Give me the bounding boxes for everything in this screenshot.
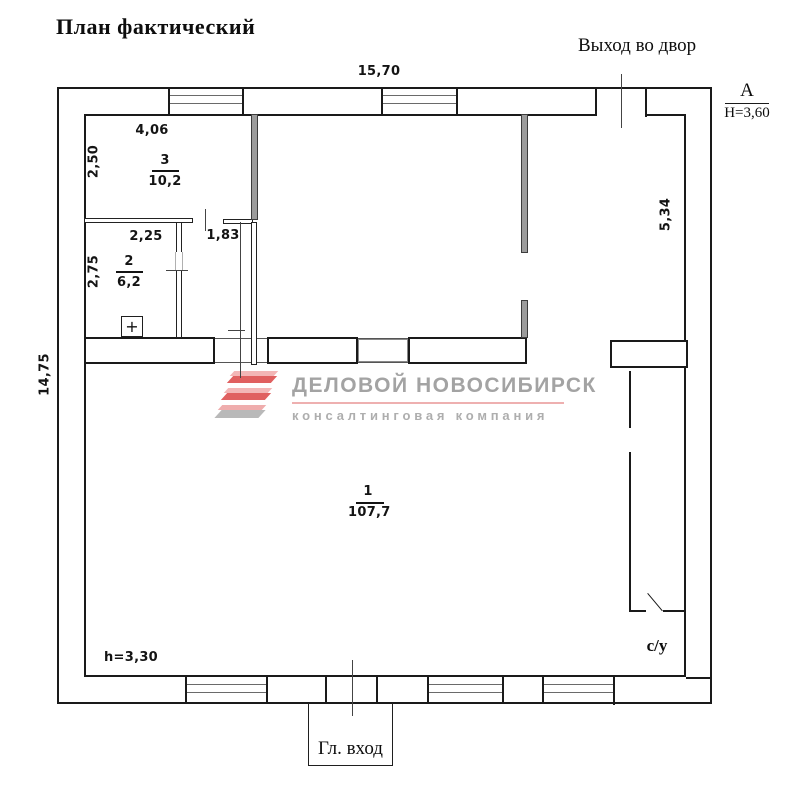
dim-hall-width: 1,83 bbox=[204, 228, 242, 243]
partition-right-gray bbox=[521, 300, 528, 338]
riser-plus-icon: + bbox=[121, 316, 143, 337]
window-bottom-2-line bbox=[428, 684, 503, 685]
window-top-2-jamb bbox=[381, 87, 383, 116]
room1-area: 107,7 bbox=[348, 505, 388, 520]
middle-wall-pier bbox=[408, 337, 527, 364]
pier-separator bbox=[325, 675, 327, 704]
middle-wall-pier bbox=[267, 337, 358, 364]
window-bottom-1-line bbox=[186, 684, 267, 685]
room2-door-opening bbox=[175, 252, 183, 271]
window-bottom-1-jamb bbox=[266, 675, 268, 704]
window-bottom-3-jamb bbox=[542, 675, 544, 704]
plus-glyph: + bbox=[125, 317, 138, 336]
section-mark: А bbox=[725, 80, 769, 104]
hall-door-axis bbox=[240, 222, 241, 378]
room3-area: 10,2 bbox=[148, 174, 182, 189]
ceiling-height-note: h=3,30 bbox=[104, 650, 152, 665]
room3-number: 3 bbox=[148, 153, 182, 168]
middle-wall-pier bbox=[610, 340, 688, 368]
door-yard-jamb bbox=[595, 87, 597, 116]
pier-separator bbox=[376, 675, 378, 704]
page-title: План фактический bbox=[56, 14, 255, 40]
door-yard-axis bbox=[621, 74, 622, 128]
hall-door-tick bbox=[228, 330, 245, 331]
dim-room3-width: 4,06 bbox=[134, 123, 170, 138]
door-yard-jamb bbox=[645, 87, 647, 117]
window-bottom-3-jamb bbox=[613, 675, 615, 705]
window-bottom-3-line bbox=[543, 684, 614, 685]
dim-left-height: 14,75 bbox=[38, 351, 53, 399]
section-height: Н=3,60 bbox=[723, 105, 771, 122]
room3-bottom-wall bbox=[223, 219, 253, 224]
window-bottom-1-jamb bbox=[185, 675, 187, 704]
dim-room3-depth: 2,50 bbox=[87, 140, 102, 184]
room2-right-wall bbox=[176, 222, 182, 338]
corner-block-line bbox=[686, 677, 711, 679]
dim-top-width: 15,70 bbox=[356, 64, 402, 79]
window-top-1-jamb bbox=[168, 87, 170, 116]
window-bottom-3-line bbox=[543, 692, 614, 693]
middle-wall-opening bbox=[358, 339, 408, 362]
window-top-1-jamb bbox=[242, 87, 244, 116]
room1-frac-line bbox=[356, 502, 384, 504]
window-bottom-2-line bbox=[428, 692, 503, 693]
floor-plan: ДЕЛОВОЙ НОВОСИБИРСК консалтинговая компа… bbox=[0, 0, 786, 800]
middle-wall-segment bbox=[84, 337, 215, 364]
exit-yard-label: Выход во двор bbox=[578, 35, 696, 57]
wc-label: с/у bbox=[638, 636, 676, 656]
partition-left-gray bbox=[251, 114, 258, 220]
room2-frac-line bbox=[116, 271, 143, 273]
hall-right-wall bbox=[251, 222, 257, 365]
room1-number: 1 bbox=[350, 484, 386, 499]
window-top-1-line bbox=[169, 95, 243, 96]
window-top-1-line bbox=[169, 103, 243, 104]
wc-top-wall bbox=[663, 610, 686, 612]
window-top-2-jamb bbox=[456, 87, 458, 116]
wc-top-wall bbox=[629, 610, 646, 612]
room2-number: 2 bbox=[112, 254, 146, 269]
window-bottom-2-jamb bbox=[502, 675, 504, 704]
inner-wall bbox=[84, 114, 686, 677]
entrance-label: Гл. вход bbox=[310, 738, 391, 760]
window-top-2-line bbox=[382, 103, 457, 104]
wc-corridor-wall bbox=[629, 452, 631, 611]
partition-right-gray bbox=[521, 114, 528, 253]
dim-right-side: 5,34 bbox=[659, 194, 674, 236]
dim-room2-width: 2,25 bbox=[128, 229, 164, 244]
room3-frac-line bbox=[152, 170, 179, 172]
dim-room2-depth: 2,75 bbox=[87, 250, 102, 294]
room2-door-axis bbox=[166, 270, 188, 271]
window-bottom-1-line bbox=[186, 692, 267, 693]
wc-corridor-wall bbox=[629, 371, 631, 428]
window-bottom-2-jamb bbox=[427, 675, 429, 704]
window-top-2-line bbox=[382, 95, 457, 96]
room2-area: 6,2 bbox=[112, 275, 146, 290]
